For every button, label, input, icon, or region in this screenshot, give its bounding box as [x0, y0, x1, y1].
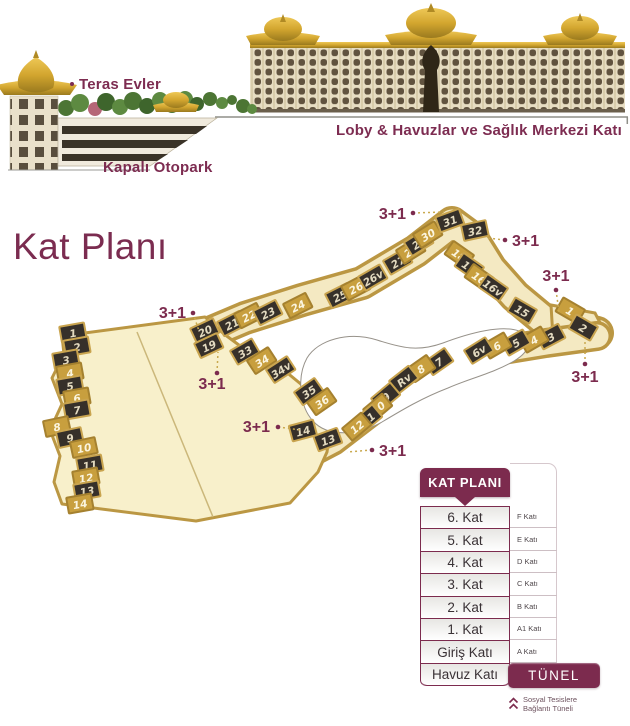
teras-evler-label: Teras Evler: [70, 76, 161, 93]
unit-type-callout: 3+1: [347, 443, 406, 460]
floor-row-5-kat[interactable]: 5. Kat: [421, 529, 509, 551]
floor-codes: F KatıE KatıD KatıC KatıB KatıA1 KatıA K…: [510, 506, 557, 685]
terrace-building-render: [0, 50, 237, 170]
floor-code-cell: C Katı: [510, 573, 557, 595]
tunnel-chevrons-icon: [508, 697, 519, 711]
tunnel-note-line1: Sosyal Tesislere: [523, 695, 577, 704]
tower-silhouette: [422, 45, 439, 112]
floor-code-cell: D Katı: [510, 551, 557, 573]
floor-row-2-kat[interactable]: 2. Kat: [421, 597, 509, 619]
callout-dot: [276, 425, 281, 430]
callout-dot: [503, 238, 508, 243]
label-dot: [70, 82, 74, 86]
callout-label: 3+1: [198, 376, 225, 393]
floor-row-3-kat[interactable]: 3. Kat: [421, 574, 509, 596]
floor-code-cell: A Katı: [510, 640, 557, 662]
floor-selector-card: KAT PLANI 6. Kat5. Kat4. Kat3. Kat2. Kat…: [420, 463, 602, 726]
callout-dot: [583, 362, 588, 367]
kat-plani-page: 1234567891011121314201921222324252626v27…: [0, 0, 630, 726]
floor-row-1-kat[interactable]: 1. Kat: [421, 619, 509, 641]
floor-code-cell: F Katı: [510, 506, 557, 528]
page-title: Kat Planı: [13, 226, 168, 268]
callout-dot: [411, 211, 416, 216]
main-building-render: [215, 3, 628, 124]
loby-havuzlar-label: Loby & Havuzlar ve Sağlık Merkezi Katı: [300, 122, 622, 139]
unit-14[interactable]: 14: [66, 493, 93, 513]
tunnel-note-line2: Bağlantı Tüneli: [523, 704, 577, 713]
callout-label: 3+1: [512, 233, 539, 250]
floor-table-header: KAT PLANI: [420, 468, 510, 497]
callout-dot: [554, 288, 559, 293]
floor-code-cell: A1 Katı: [510, 618, 557, 640]
callout-dot: [370, 448, 375, 453]
callout-label: 3+1: [243, 419, 270, 436]
floor-rows: 6. Kat5. Kat4. Kat3. Kat2. Kat1. KatGiri…: [420, 506, 510, 686]
floor-table-header-label: KAT PLANI: [428, 475, 502, 490]
callout-label: 3+1: [379, 443, 406, 460]
floor-row-giri-kat-[interactable]: Giriş Katı: [421, 641, 509, 663]
tunnel-button[interactable]: TÜNEL: [508, 663, 600, 688]
floor-code-cell: B Katı: [510, 596, 557, 618]
floor-row-havuz-kat-[interactable]: Havuz Katı: [421, 664, 509, 686]
callout-label: 3+1: [571, 369, 598, 386]
floor-row-6-kat[interactable]: 6. Kat: [421, 507, 509, 529]
unit-number: 14: [72, 498, 88, 512]
header-notch: [455, 497, 475, 506]
callout-dot: [191, 311, 196, 316]
callout-label: 3+1: [379, 206, 406, 223]
kapali-otopark-label: Kapalı Otopark: [103, 159, 213, 176]
floor-row-4-kat[interactable]: 4. Kat: [421, 552, 509, 574]
tunnel-note: Sosyal Tesislere Bağlantı Tüneli: [508, 695, 577, 713]
callout-label: 3+1: [159, 305, 186, 322]
floor-code-cell: E Katı: [510, 528, 557, 550]
callout-dot: [215, 371, 220, 376]
callout-label: 3+1: [542, 268, 569, 285]
